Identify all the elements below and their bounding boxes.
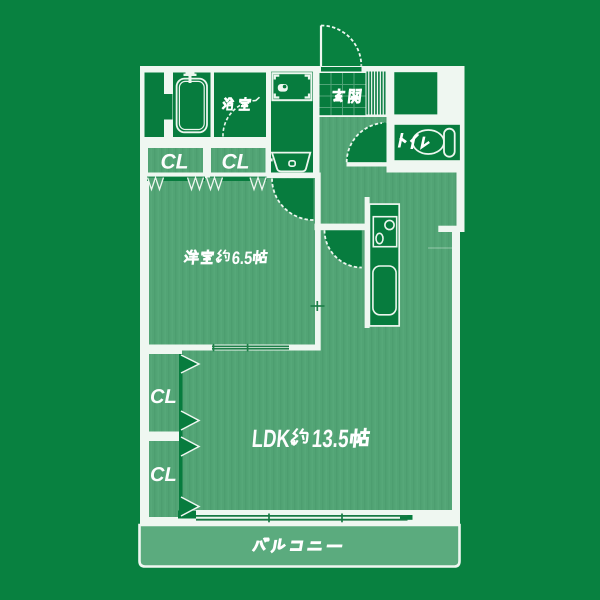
svg-text:CL: CL	[150, 386, 177, 408]
svg-text:LDK: LDK	[251, 425, 291, 453]
svg-text:CL: CL	[161, 151, 189, 174]
svg-text:CL: CL	[222, 151, 250, 174]
svg-text:6.5: 6.5	[231, 248, 253, 268]
svg-text:13.5: 13.5	[311, 425, 350, 453]
svg-text:CL: CL	[150, 464, 177, 486]
